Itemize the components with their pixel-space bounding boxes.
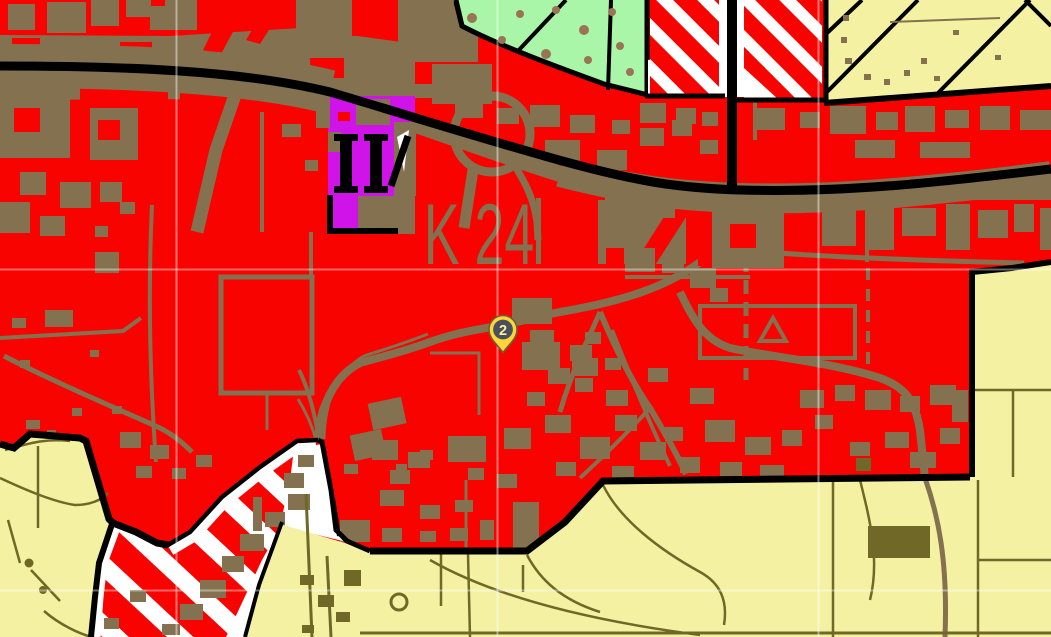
svg-text:2: 2 [499,323,507,339]
